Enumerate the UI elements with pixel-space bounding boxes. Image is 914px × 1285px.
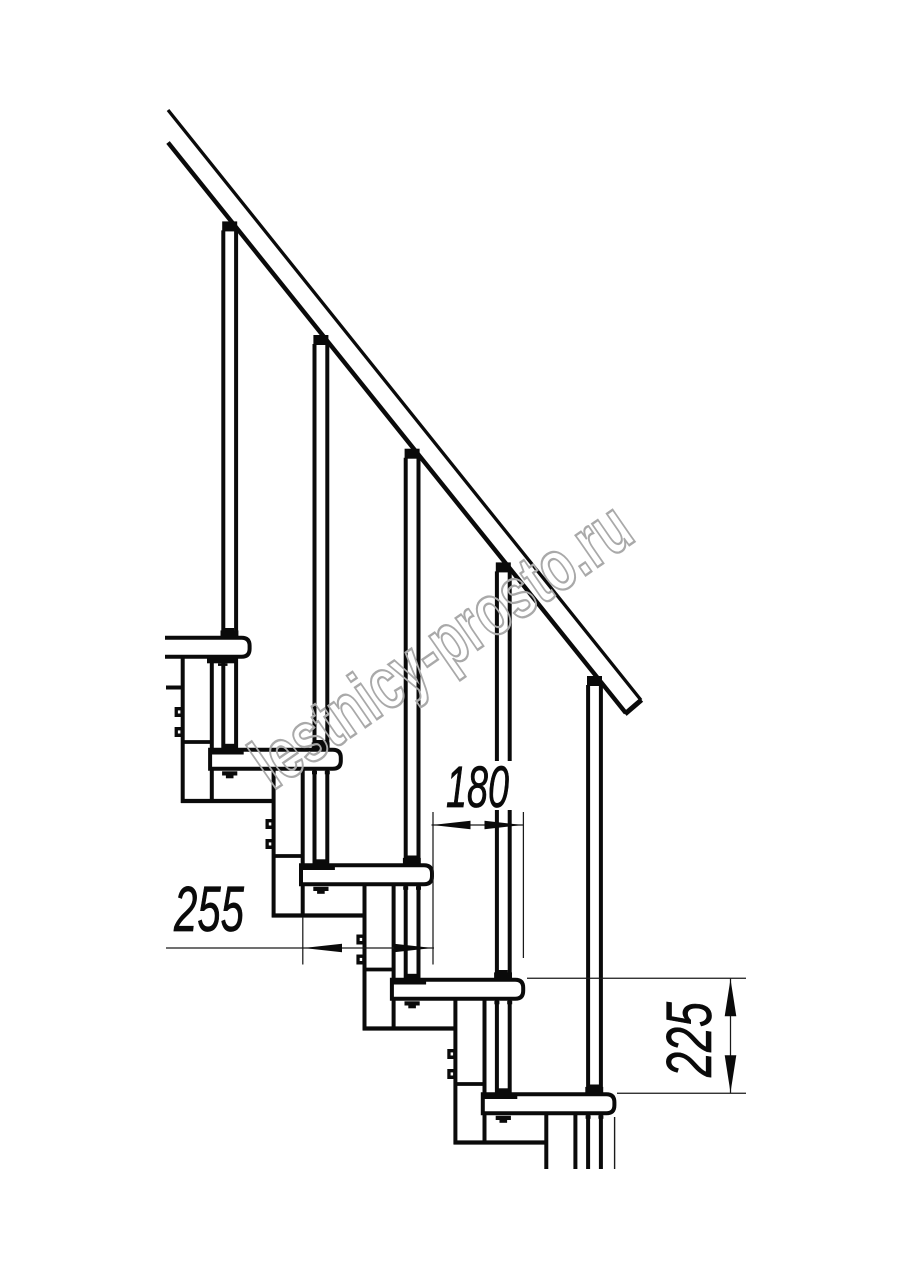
svg-text:255: 255	[173, 873, 244, 945]
svg-text:180: 180	[446, 755, 509, 820]
svg-text:225: 225	[653, 1002, 725, 1078]
